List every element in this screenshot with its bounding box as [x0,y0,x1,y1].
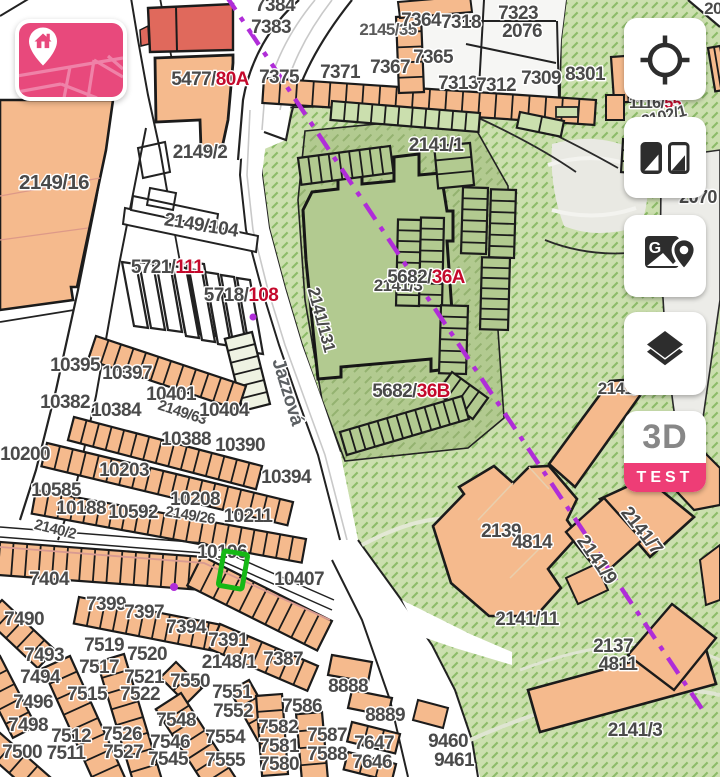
svg-text:7312: 7312 [476,75,516,96]
svg-text:2076: 2076 [502,21,542,42]
svg-text:7493: 7493 [24,645,64,666]
svg-text:7554: 7554 [205,727,246,748]
svg-text:20: 20 [704,0,720,18]
svg-text:4811: 4811 [599,654,639,675]
svg-text:7527: 7527 [103,742,143,763]
svg-text:7367: 7367 [370,57,410,78]
svg-text:7371: 7371 [320,62,361,83]
svg-text:7517: 7517 [79,657,119,678]
svg-text:7586: 7586 [282,696,322,717]
svg-text:9461: 9461 [434,750,475,771]
svg-text:2149/16: 2149/16 [19,171,89,194]
svg-text:10395: 10395 [50,355,101,376]
svg-text:10384: 10384 [91,400,142,421]
svg-text:7582: 7582 [258,717,298,738]
svg-text:7498: 7498 [8,715,48,736]
svg-text:7365: 7365 [413,47,454,68]
svg-text:5682/36B: 5682/36B [372,381,450,402]
svg-text:10203: 10203 [99,460,149,481]
svg-text:7397: 7397 [124,602,164,623]
svg-text:7580: 7580 [259,754,299,775]
svg-text:8889: 8889 [365,705,405,726]
svg-text:4814: 4814 [512,532,553,553]
svg-text:7383: 7383 [251,17,291,38]
svg-text:10592: 10592 [108,502,158,523]
svg-text:7587: 7587 [307,725,347,746]
svg-text:7550: 7550 [170,671,210,692]
svg-text:7500: 7500 [2,742,42,763]
svg-text:G: G [649,240,661,257]
svg-text:8888: 8888 [328,676,368,697]
svg-text:7545: 7545 [148,749,189,770]
svg-text:10404: 10404 [199,400,250,421]
svg-text:7520: 7520 [127,644,167,665]
svg-text:7551: 7551 [212,682,253,703]
svg-text:7394: 7394 [166,617,207,638]
svg-text:10388: 10388 [161,429,211,450]
svg-text:8301: 8301 [565,64,606,85]
svg-text:5682/36A: 5682/36A [387,267,465,288]
svg-text:10200: 10200 [0,444,50,465]
svg-text:2141/1: 2141/1 [409,135,465,156]
svg-text:7496: 7496 [13,692,53,713]
svg-text:7548: 7548 [156,710,196,731]
svg-text:7511: 7511 [47,743,87,764]
svg-text:7552: 7552 [213,701,253,722]
svg-text:5721/111: 5721/111 [131,257,204,278]
svg-text:2149/2: 2149/2 [173,142,228,163]
svg-text:7391: 7391 [208,630,249,651]
svg-text:7515: 7515 [67,684,108,705]
svg-text:7494: 7494 [20,667,61,688]
svg-text:10394: 10394 [261,467,312,488]
svg-text:10211: 10211 [224,506,274,527]
svg-text:10382: 10382 [40,392,90,413]
svg-text:7490: 7490 [4,609,44,630]
svg-text:7309: 7309 [521,68,561,89]
svg-text:2148/1: 2148/1 [202,652,258,673]
svg-text:7399: 7399 [86,594,126,615]
svg-text:10188: 10188 [56,498,106,519]
svg-text:10390: 10390 [215,435,265,456]
svg-text:9460: 9460 [428,731,468,752]
svg-text:7647: 7647 [354,733,394,754]
svg-text:7646: 7646 [352,752,392,773]
svg-text:2141/11: 2141/11 [495,609,559,630]
svg-text:7519: 7519 [84,635,124,656]
svg-text:7384: 7384 [255,0,296,16]
svg-text:2141/3: 2141/3 [608,720,663,741]
svg-text:7387: 7387 [263,649,303,670]
svg-text:7313: 7313 [438,73,478,94]
svg-text:7555: 7555 [205,750,246,771]
svg-text:7404: 7404 [29,569,70,590]
svg-text:5477/80A: 5477/80A [171,69,249,90]
svg-text:10397: 10397 [102,363,152,384]
svg-text:10407: 10407 [274,569,324,590]
svg-text:7318: 7318 [441,12,481,33]
svg-text:5718/108: 5718/108 [204,285,278,306]
svg-text:7522: 7522 [120,684,160,705]
svg-text:7364: 7364 [401,10,442,31]
svg-text:7375: 7375 [259,67,300,88]
svg-text:7588: 7588 [307,744,347,765]
